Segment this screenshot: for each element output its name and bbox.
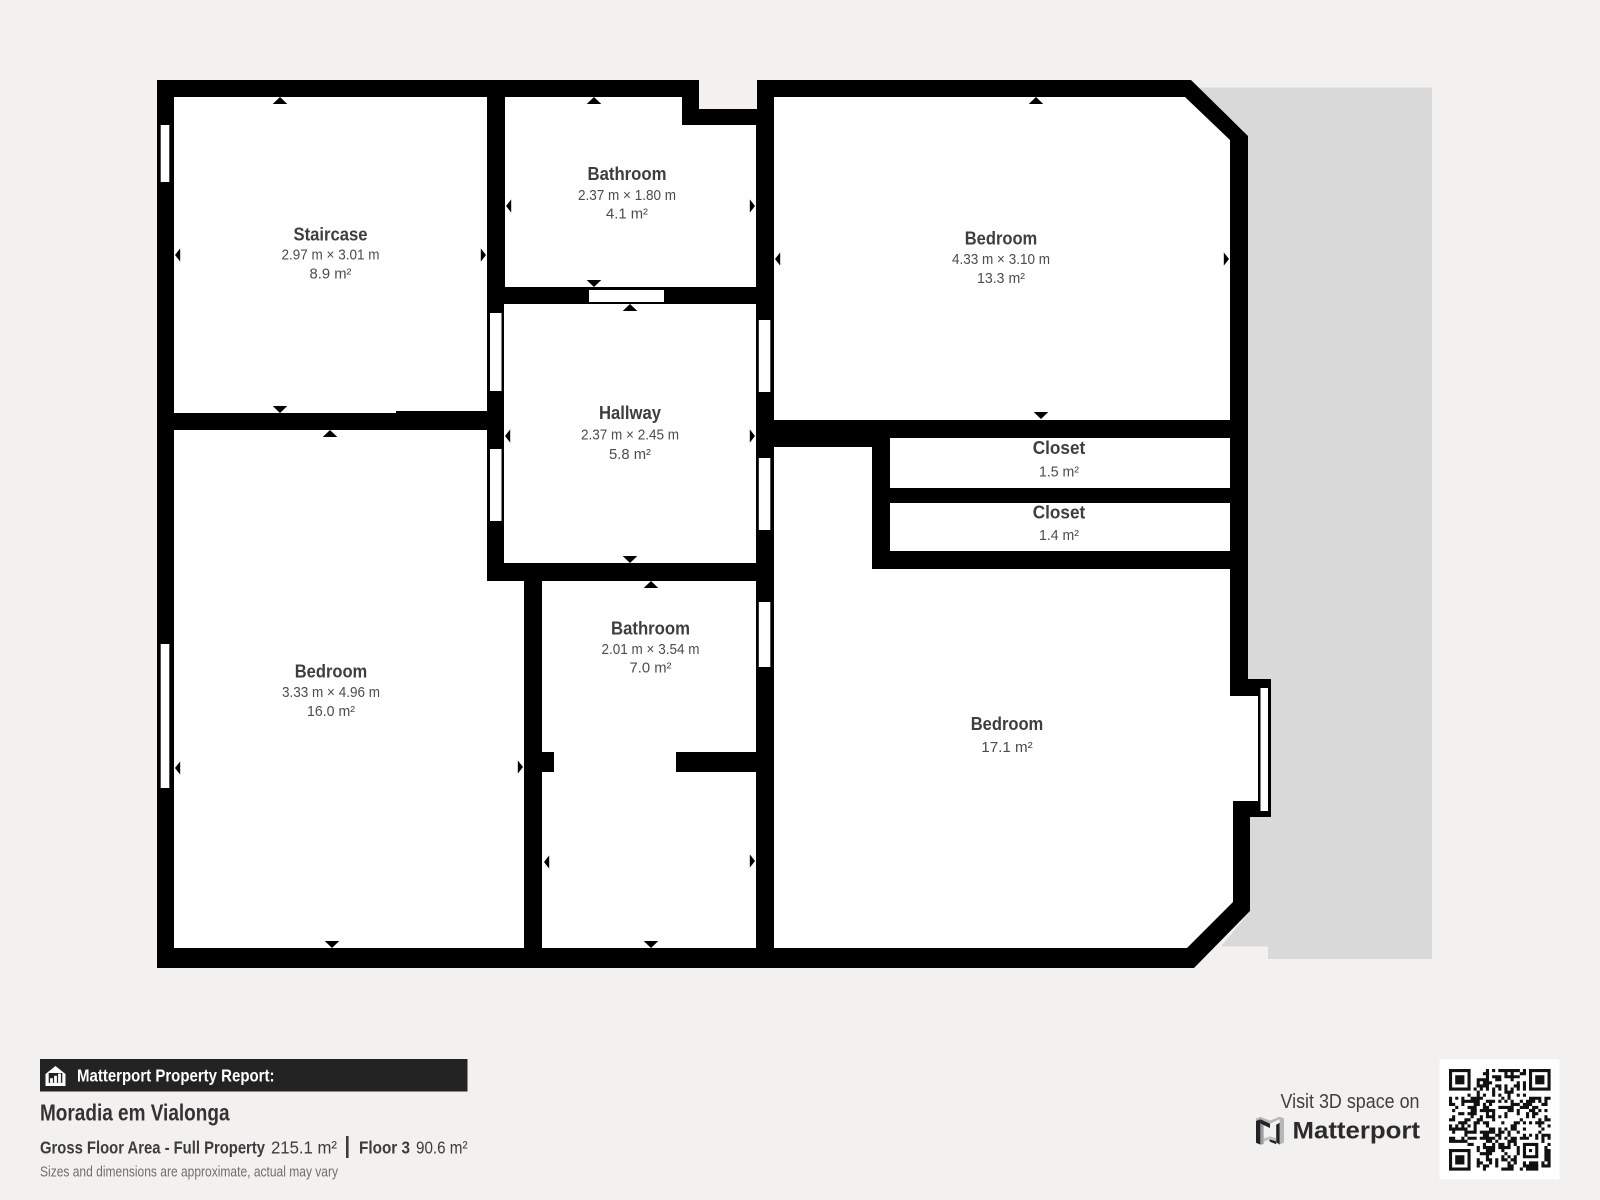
svg-text:Gross Floor Area - Full Proper: Gross Floor Area - Full Property xyxy=(40,1138,265,1158)
svg-text:17.1 m²: 17.1 m² xyxy=(981,740,1033,756)
svg-text:8.9 m²: 8.9 m² xyxy=(310,267,352,283)
svg-text:215.1 m²: 215.1 m² xyxy=(271,1138,337,1158)
svg-text:Hallway: Hallway xyxy=(599,402,662,423)
svg-text:13.3 m²: 13.3 m² xyxy=(977,271,1025,287)
svg-text:Bathroom: Bathroom xyxy=(611,618,690,639)
svg-text:2.37 m × 2.45 m: 2.37 m × 2.45 m xyxy=(581,428,679,444)
svg-text:16.0 m²: 16.0 m² xyxy=(307,704,355,720)
svg-text:Staircase: Staircase xyxy=(294,224,368,245)
svg-text:Bedroom: Bedroom xyxy=(965,228,1038,249)
svg-text:2.97 m × 3.01 m: 2.97 m × 3.01 m xyxy=(282,248,380,264)
svg-text:Matterport: Matterport xyxy=(1293,1118,1421,1145)
svg-text:Matterport Property Report:: Matterport Property Report: xyxy=(77,1066,275,1086)
svg-text:90.6 m²: 90.6 m² xyxy=(416,1138,468,1158)
svg-text:Floor 3: Floor 3 xyxy=(359,1138,410,1158)
svg-text:Closet: Closet xyxy=(1033,502,1086,523)
svg-text:Bedroom: Bedroom xyxy=(295,661,368,682)
svg-text:1.5 m²: 1.5 m² xyxy=(1039,465,1079,481)
svg-text:1.4 m²: 1.4 m² xyxy=(1039,528,1079,544)
svg-text:4.1 m²: 4.1 m² xyxy=(606,207,648,223)
svg-text:Bedroom: Bedroom xyxy=(971,713,1044,734)
svg-text:Moradia em Vialonga: Moradia em Vialonga xyxy=(40,1100,230,1126)
svg-text:7.0 m²: 7.0 m² xyxy=(630,661,672,677)
svg-text:Bathroom: Bathroom xyxy=(588,163,667,184)
svg-text:5.8 m²: 5.8 m² xyxy=(609,447,651,463)
svg-text:3.33 m × 4.96 m: 3.33 m × 4.96 m xyxy=(282,685,380,701)
svg-text:4.33 m × 3.10 m: 4.33 m × 3.10 m xyxy=(952,252,1050,268)
svg-text:2.37 m × 1.80 m: 2.37 m × 1.80 m xyxy=(578,188,676,204)
svg-text:Visit 3D space on: Visit 3D space on xyxy=(1281,1091,1420,1113)
svg-text:2.01 m × 3.54 m: 2.01 m × 3.54 m xyxy=(602,642,700,658)
svg-text:Closet: Closet xyxy=(1033,437,1086,458)
svg-text:Sizes and dimensions are appro: Sizes and dimensions are approximate, ac… xyxy=(40,1164,338,1181)
